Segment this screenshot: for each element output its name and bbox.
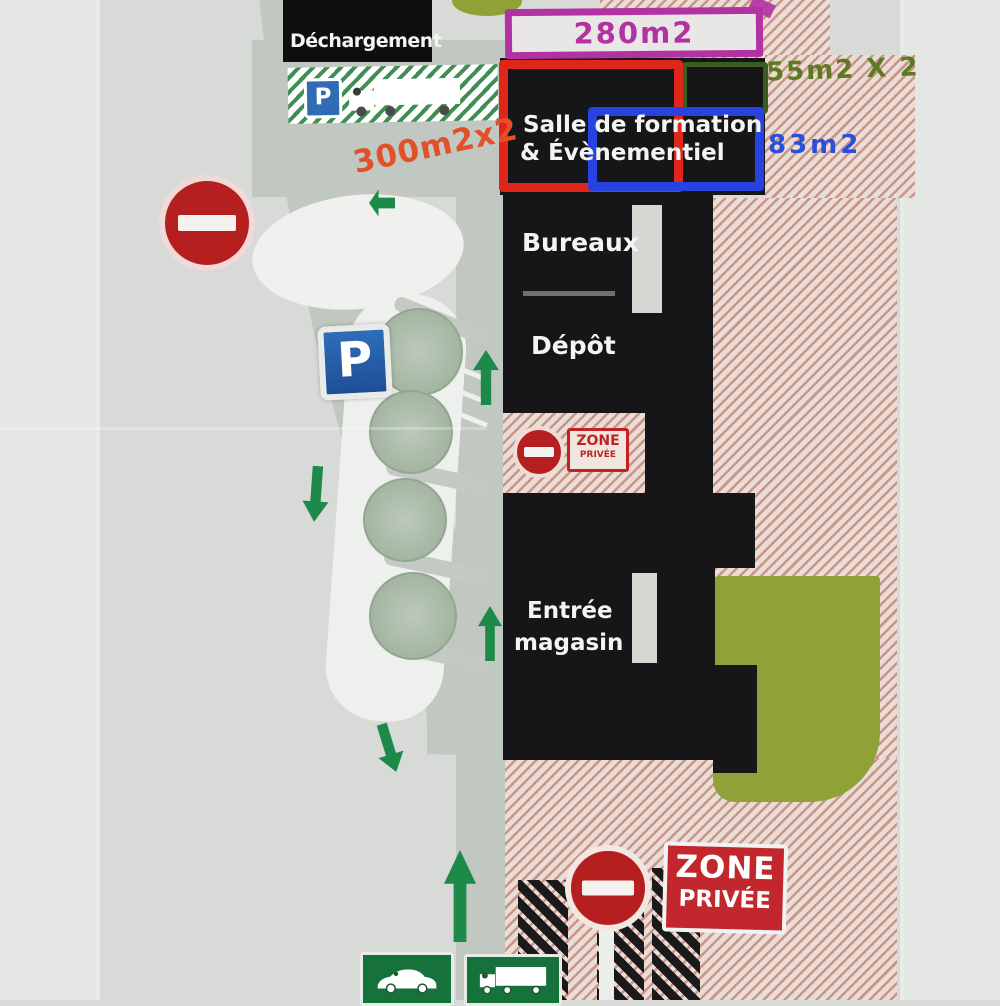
arrow-up-icon [473,350,499,405]
parking-small-sign: P [304,78,343,119]
photo-right-fold [904,0,1000,1000]
zone-small-line1: ZONE [570,433,626,450]
truck-access-sign [464,954,562,1006]
entree-label-line1: Entrée [527,598,613,624]
zone-large-line2: PRIVÉE [666,885,783,914]
arrow-left-icon [369,190,395,217]
entree-label-line2: magasin [514,630,623,656]
bureaux-label: Bureaux [522,228,639,257]
tree-icon [370,391,452,473]
loading-dock-label: Déchargement [290,30,441,52]
loading-dock-box: Déchargement [283,0,432,62]
car-access-sign [360,952,454,1006]
area-280-box: 280m2 [505,7,763,59]
fold-line [0,427,486,430]
area-label-83: 83m2 [768,130,861,160]
no-entry-icon [565,845,651,931]
arrow-up-icon [478,606,502,661]
parking-sign: P [317,323,393,401]
sign-pole [599,928,614,1000]
salle-label-line2: & Évènementiel [520,140,725,166]
building-magasin [503,568,715,760]
no-entry-icon [159,175,255,271]
fold-line [96,0,100,1000]
car-icon [374,962,440,996]
arrow-down-icon [301,465,331,523]
site-plan: Déchargement P 300m2x2 280m2 Salle de fo… [0,0,1000,1000]
door-magasin [632,573,657,663]
no-entry-icon [513,426,565,478]
depot-label: Dépôt [531,331,616,360]
zone-small-line2: PRIVÉE [570,450,626,460]
tree-icon [364,479,446,561]
building-mid [503,493,755,568]
door-bureaux [632,205,662,313]
arrow-up-icon [444,850,476,942]
tree-icon [370,573,456,659]
salle-label-line1: Salle de formation [523,112,762,138]
truck-icon [477,964,549,996]
area-label-280: 280m2 [573,15,694,50]
zone-privee-small-sign: ZONE PRIVÉE [567,428,629,472]
building-step [713,665,757,773]
zone-large-line1: ZONE [667,848,784,888]
zone-privee-large-sign: ZONE PRIVÉE [662,841,788,934]
area-label-55: 55m2 X 2 [766,52,921,87]
building-connector [645,413,713,493]
bureaux-divider [523,291,615,296]
photo-left-fold [0,0,96,1000]
truck-parking-zone: P [288,64,499,124]
truck-icon [346,75,467,117]
